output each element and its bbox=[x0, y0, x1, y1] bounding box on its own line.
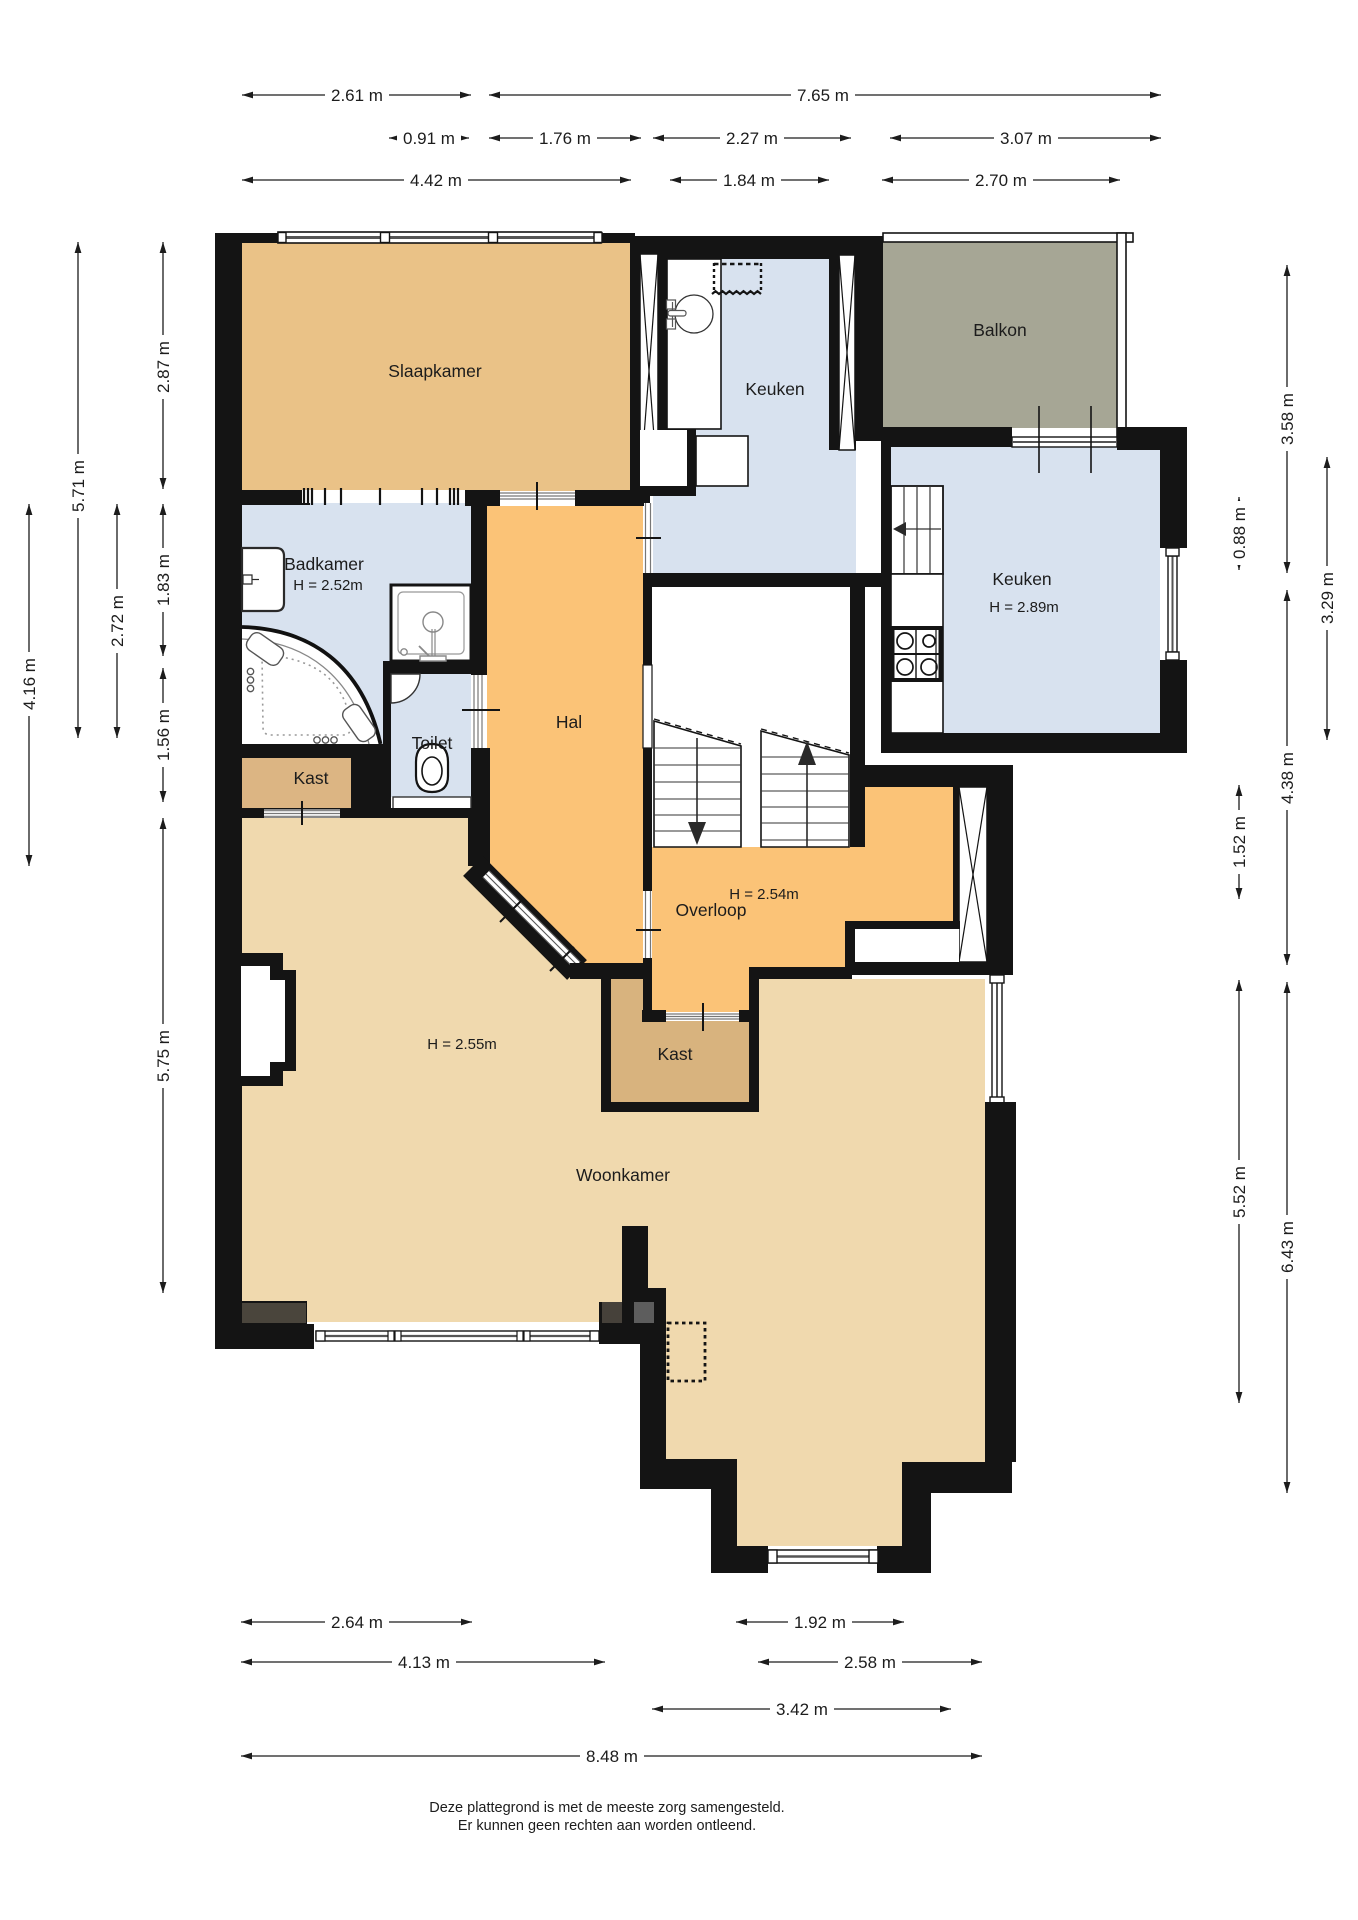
svg-text:8.48 m: 8.48 m bbox=[586, 1747, 638, 1766]
svg-text:2.27 m: 2.27 m bbox=[726, 129, 778, 148]
svg-text:Overloop: Overloop bbox=[675, 900, 746, 920]
svg-text:Balkon: Balkon bbox=[973, 320, 1027, 340]
svg-text:3.58 m: 3.58 m bbox=[1278, 393, 1297, 445]
svg-text:4.13 m: 4.13 m bbox=[398, 1653, 450, 1672]
svg-text:Slaapkamer: Slaapkamer bbox=[388, 361, 482, 381]
svg-text:Er kunnen geen rechten aan wor: Er kunnen geen rechten aan worden ontlee… bbox=[458, 1818, 756, 1834]
svg-text:5.52 m: 5.52 m bbox=[1230, 1166, 1249, 1218]
svg-text:1.84 m: 1.84 m bbox=[723, 171, 775, 190]
svg-text:5.75 m: 5.75 m bbox=[154, 1030, 173, 1082]
svg-text:H = 2.55m: H = 2.55m bbox=[427, 1036, 497, 1053]
svg-text:Toilet: Toilet bbox=[412, 733, 453, 753]
svg-text:2.87 m: 2.87 m bbox=[154, 341, 173, 393]
svg-text:3.29 m: 3.29 m bbox=[1318, 572, 1337, 624]
svg-text:2.61 m: 2.61 m bbox=[331, 86, 383, 105]
svg-text:0.88 m: 0.88 m bbox=[1230, 507, 1249, 559]
svg-text:Hal: Hal bbox=[556, 712, 582, 732]
svg-text:H = 2.52m: H = 2.52m bbox=[293, 577, 363, 594]
svg-text:Kast: Kast bbox=[293, 768, 328, 788]
svg-text:1.76 m: 1.76 m bbox=[539, 129, 591, 148]
svg-text:1.52 m: 1.52 m bbox=[1230, 816, 1249, 868]
svg-text:4.42 m: 4.42 m bbox=[410, 171, 462, 190]
svg-text:5.71 m: 5.71 m bbox=[69, 460, 88, 512]
svg-text:2.70 m: 2.70 m bbox=[975, 171, 1027, 190]
svg-text:4.38 m: 4.38 m bbox=[1278, 752, 1297, 804]
svg-text:1.56 m: 1.56 m bbox=[154, 709, 173, 761]
svg-text:7.65 m: 7.65 m bbox=[797, 86, 849, 105]
svg-text:3.07 m: 3.07 m bbox=[1000, 129, 1052, 148]
svg-text:Woonkamer: Woonkamer bbox=[576, 1165, 670, 1185]
svg-text:1.92 m: 1.92 m bbox=[794, 1613, 846, 1632]
svg-text:Keuken: Keuken bbox=[992, 569, 1051, 589]
svg-text:2.72 m: 2.72 m bbox=[108, 595, 127, 647]
svg-text:4.16 m: 4.16 m bbox=[20, 658, 39, 710]
svg-text:H = 2.89m: H = 2.89m bbox=[989, 599, 1059, 616]
svg-text:2.58 m: 2.58 m bbox=[844, 1653, 896, 1672]
svg-text:3.42 m: 3.42 m bbox=[776, 1700, 828, 1719]
svg-text:0.91 m: 0.91 m bbox=[403, 129, 455, 148]
svg-text:Badkamer: Badkamer bbox=[284, 554, 364, 574]
svg-text:2.64 m: 2.64 m bbox=[331, 1613, 383, 1632]
svg-text:6.43 m: 6.43 m bbox=[1278, 1221, 1297, 1273]
svg-text:Keuken: Keuken bbox=[745, 379, 804, 399]
svg-text:1.83 m: 1.83 m bbox=[154, 554, 173, 606]
svg-text:Kast: Kast bbox=[657, 1044, 692, 1064]
svg-text:Deze plattegrond is met de mee: Deze plattegrond is met de meeste zorg s… bbox=[429, 1800, 784, 1816]
